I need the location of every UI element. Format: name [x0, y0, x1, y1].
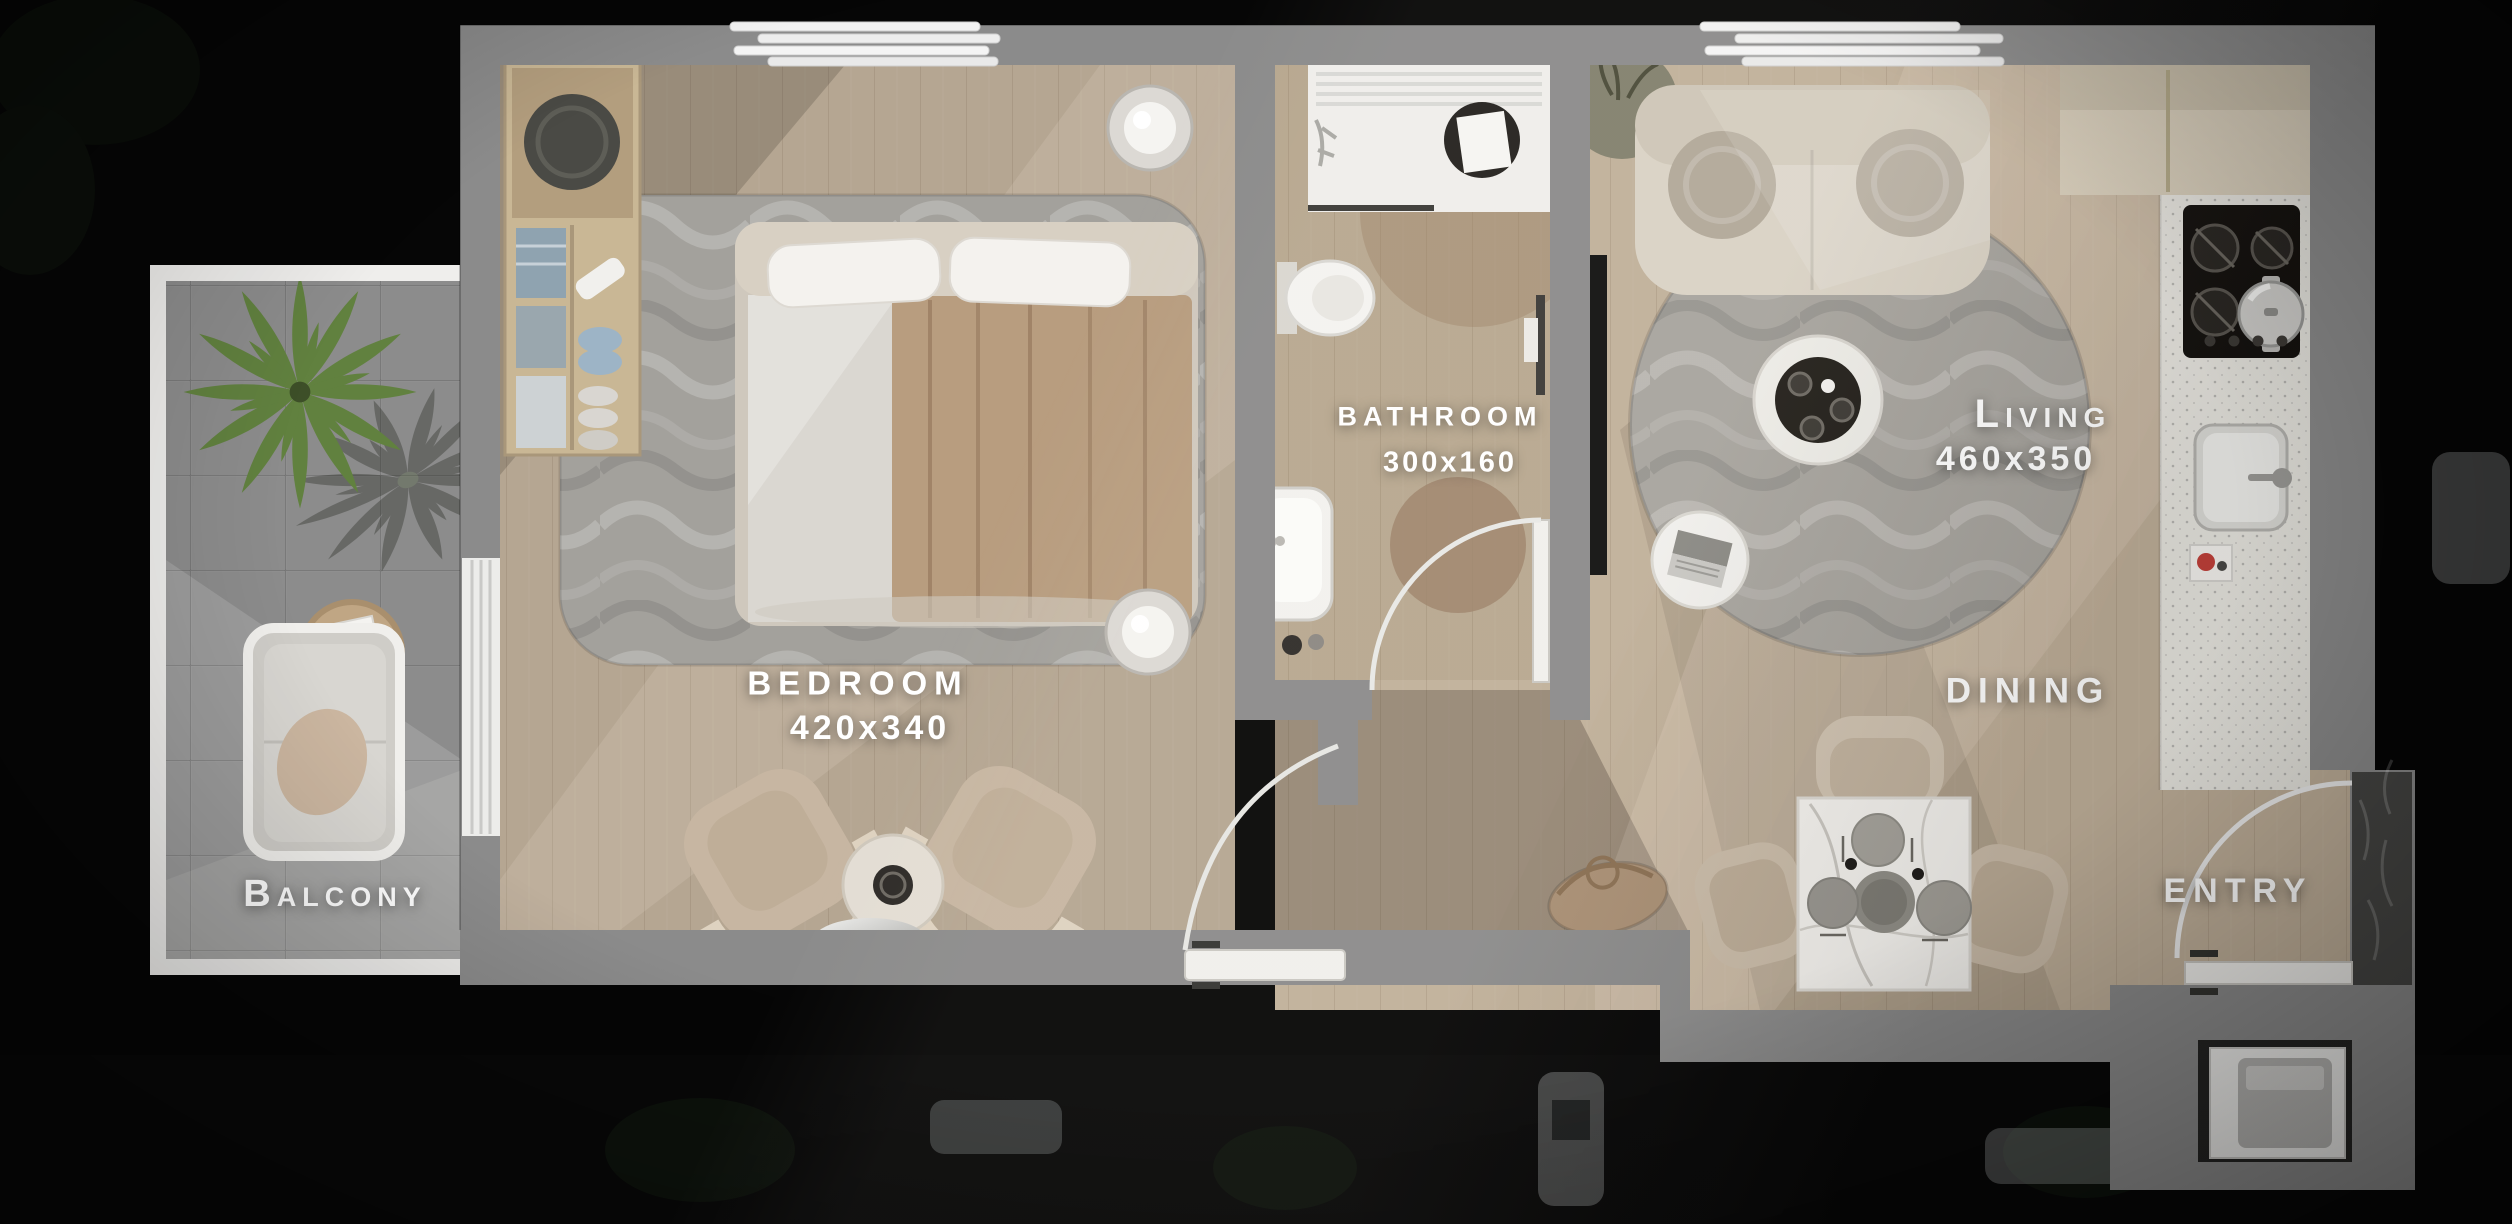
entry-label: ENTRY — [2164, 874, 2313, 908]
coffee-table — [1754, 336, 1882, 464]
living-dimensions: 460x350 — [1936, 442, 2096, 476]
balcony-label: Balcony — [243, 875, 426, 913]
tv — [1590, 255, 1607, 575]
bedside-lamp-top — [1108, 86, 1192, 170]
bathroom-wall-right — [1550, 65, 1590, 680]
laptop-table — [1652, 512, 1748, 608]
toilet — [1277, 261, 1374, 335]
living-label: Living — [1975, 394, 2112, 434]
plate — [1808, 878, 1858, 928]
plate — [1917, 881, 1971, 935]
pillow — [766, 238, 941, 309]
dining-table — [1798, 798, 1971, 990]
kitchen-sink — [2195, 425, 2292, 530]
counter-item — [2190, 545, 2232, 581]
entry-door-leaf — [2185, 962, 2352, 984]
wardrobe — [505, 60, 640, 455]
bedroom-label: BEDROOM — [747, 667, 968, 700]
living-sofa — [1635, 85, 1990, 295]
plate — [1852, 814, 1904, 866]
balcony-railing — [150, 265, 166, 975]
bath-accessory — [1282, 635, 1302, 655]
bathroom-wall-left — [1235, 65, 1275, 680]
wall-right — [2310, 25, 2375, 770]
pillow — [949, 237, 1131, 307]
towel — [1524, 318, 1538, 362]
outdoor-sofa — [248, 628, 400, 856]
bathroom-dimensions: 300x160 — [1383, 449, 1517, 478]
bedroom-dimensions: 420x340 — [790, 711, 950, 745]
bathroom-label: BATHROOM — [1338, 404, 1543, 431]
wall-bottom-a — [460, 930, 1690, 985]
bedside-lamp-bottom — [1106, 590, 1190, 674]
utility-closet — [2198, 1040, 2352, 1162]
floorplan-scene: BEDROOM 420x340 BATHROOM 300x160 Living … — [0, 0, 2512, 1224]
gas-hob — [2183, 205, 2303, 358]
tree-blob — [605, 1098, 795, 1202]
dining-label: DINING — [1946, 674, 2111, 709]
bed — [735, 222, 1198, 628]
balcony-sliding-door — [462, 558, 500, 836]
shoes — [578, 386, 618, 406]
door-wall-stub — [1318, 720, 1358, 805]
floorplan-rendering — [0, 0, 2512, 1224]
shower — [1308, 65, 1550, 212]
